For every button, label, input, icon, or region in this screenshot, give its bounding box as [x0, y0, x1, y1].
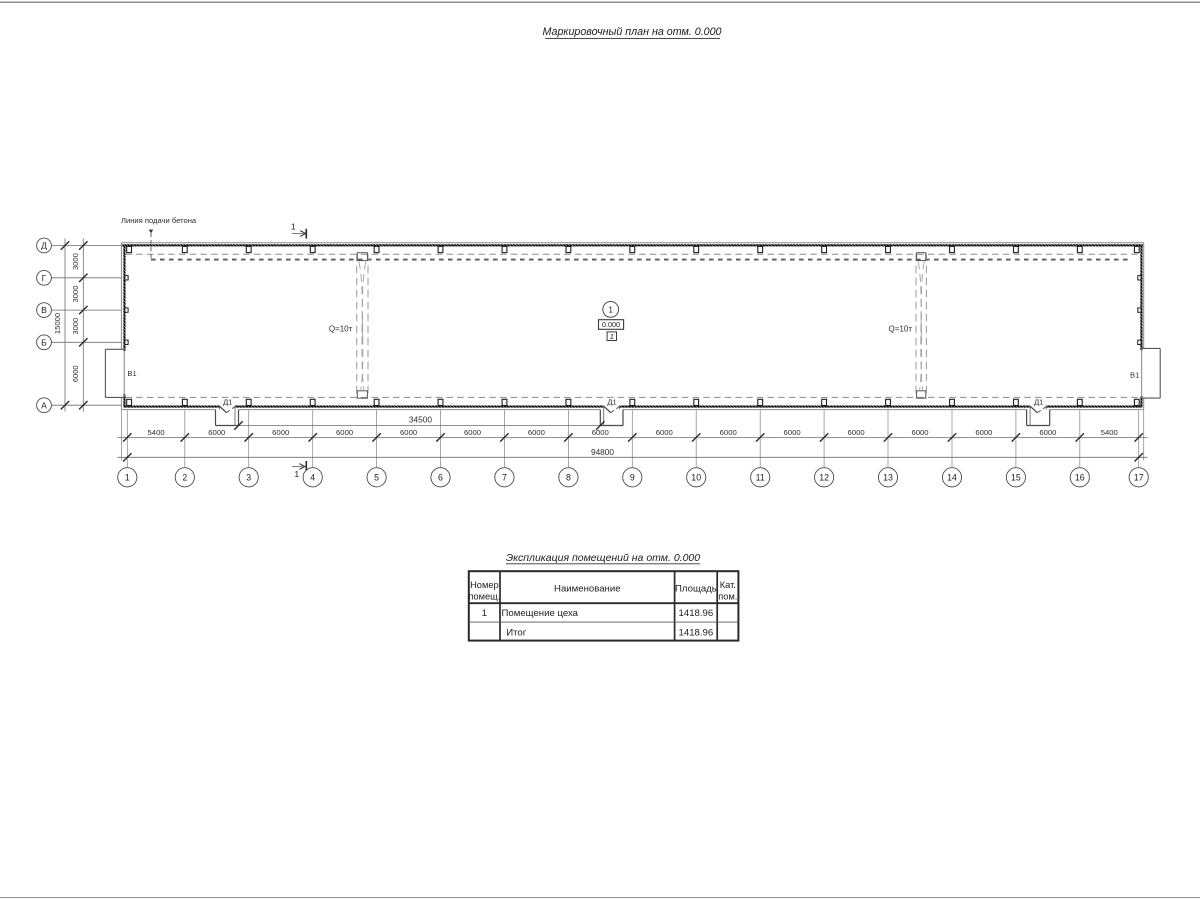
svg-text:12: 12	[819, 473, 829, 483]
svg-text:6000: 6000	[911, 428, 928, 437]
svg-text:6000: 6000	[208, 428, 225, 437]
svg-text:Д: Д	[41, 241, 47, 251]
svg-text:8: 8	[566, 473, 571, 483]
svg-text:2: 2	[182, 473, 187, 483]
svg-text:15: 15	[1011, 473, 1021, 483]
svg-text:15000: 15000	[53, 313, 62, 334]
svg-text:6000: 6000	[848, 428, 865, 437]
svg-text:Итог: Итог	[506, 627, 527, 638]
svg-text:1418.96: 1418.96	[679, 608, 714, 619]
svg-text:1: 1	[608, 305, 613, 314]
svg-text:6000: 6000	[464, 428, 481, 437]
svg-text:В: В	[41, 305, 47, 315]
svg-text:1: 1	[125, 473, 130, 483]
svg-text:6000: 6000	[336, 428, 353, 437]
svg-text:11: 11	[756, 473, 765, 483]
svg-text:16: 16	[1075, 473, 1085, 483]
svg-text:0.000: 0.000	[602, 320, 620, 329]
svg-text:5400: 5400	[148, 428, 165, 437]
svg-text:1: 1	[291, 222, 296, 232]
svg-text:1: 1	[610, 332, 614, 341]
svg-text:3000: 3000	[71, 253, 80, 270]
svg-text:Q=10т: Q=10т	[329, 325, 353, 334]
svg-text:6000: 6000	[656, 428, 673, 437]
svg-text:4: 4	[310, 473, 315, 483]
svg-text:6: 6	[438, 473, 443, 483]
svg-text:помещ.: помещ.	[468, 591, 500, 601]
svg-text:Д1: Д1	[223, 397, 232, 406]
svg-text:6000: 6000	[272, 428, 289, 437]
svg-text:9: 9	[630, 473, 635, 483]
svg-text:6000: 6000	[528, 428, 545, 437]
svg-text:10: 10	[691, 473, 701, 483]
svg-text:94800: 94800	[591, 447, 614, 457]
svg-text:6000: 6000	[71, 365, 80, 382]
svg-text:Наименование: Наименование	[554, 583, 621, 594]
svg-text:пом.: пом.	[718, 591, 737, 601]
svg-text:Б: Б	[41, 337, 47, 347]
svg-text:А: А	[41, 400, 47, 410]
svg-text:В1: В1	[127, 369, 136, 378]
svg-text:Г: Г	[42, 273, 47, 283]
svg-text:Линия подачи бетона: Линия подачи бетона	[121, 216, 197, 225]
svg-text:Q=10т: Q=10т	[889, 325, 913, 334]
svg-text:5400: 5400	[1101, 428, 1118, 437]
svg-text:6000: 6000	[720, 428, 737, 437]
svg-text:Маркировочный план на отм. 0.0: Маркировочный план на отм. 0.000	[542, 26, 721, 38]
svg-text:Кат.: Кат.	[720, 580, 736, 590]
svg-text:Д1: Д1	[607, 397, 616, 406]
svg-text:6000: 6000	[975, 428, 992, 437]
svg-text:Помещение цеха: Помещение цеха	[502, 608, 579, 619]
svg-text:Площадь: Площадь	[675, 583, 717, 594]
svg-text:14: 14	[947, 473, 957, 483]
svg-text:1418.96: 1418.96	[679, 627, 714, 638]
svg-text:1: 1	[482, 608, 487, 619]
svg-text:1: 1	[294, 469, 299, 479]
svg-text:В1: В1	[1130, 371, 1139, 380]
svg-text:Д1: Д1	[1034, 397, 1043, 406]
svg-text:Номер: Номер	[470, 580, 499, 590]
svg-text:6000: 6000	[1039, 428, 1056, 437]
svg-text:6000: 6000	[592, 428, 609, 437]
svg-text:3000: 3000	[71, 318, 80, 335]
svg-text:3: 3	[246, 473, 251, 483]
svg-text:3000: 3000	[71, 286, 80, 303]
svg-text:6000: 6000	[400, 428, 417, 437]
svg-text:Экспликация помещений на отм.: Экспликация помещений на отм. 0.000	[506, 552, 700, 564]
svg-text:6000: 6000	[784, 428, 801, 437]
svg-text:7: 7	[502, 473, 507, 483]
svg-text:13: 13	[883, 473, 893, 483]
svg-text:17: 17	[1134, 473, 1144, 483]
svg-text:5: 5	[374, 473, 379, 483]
svg-text:34500: 34500	[409, 415, 432, 425]
